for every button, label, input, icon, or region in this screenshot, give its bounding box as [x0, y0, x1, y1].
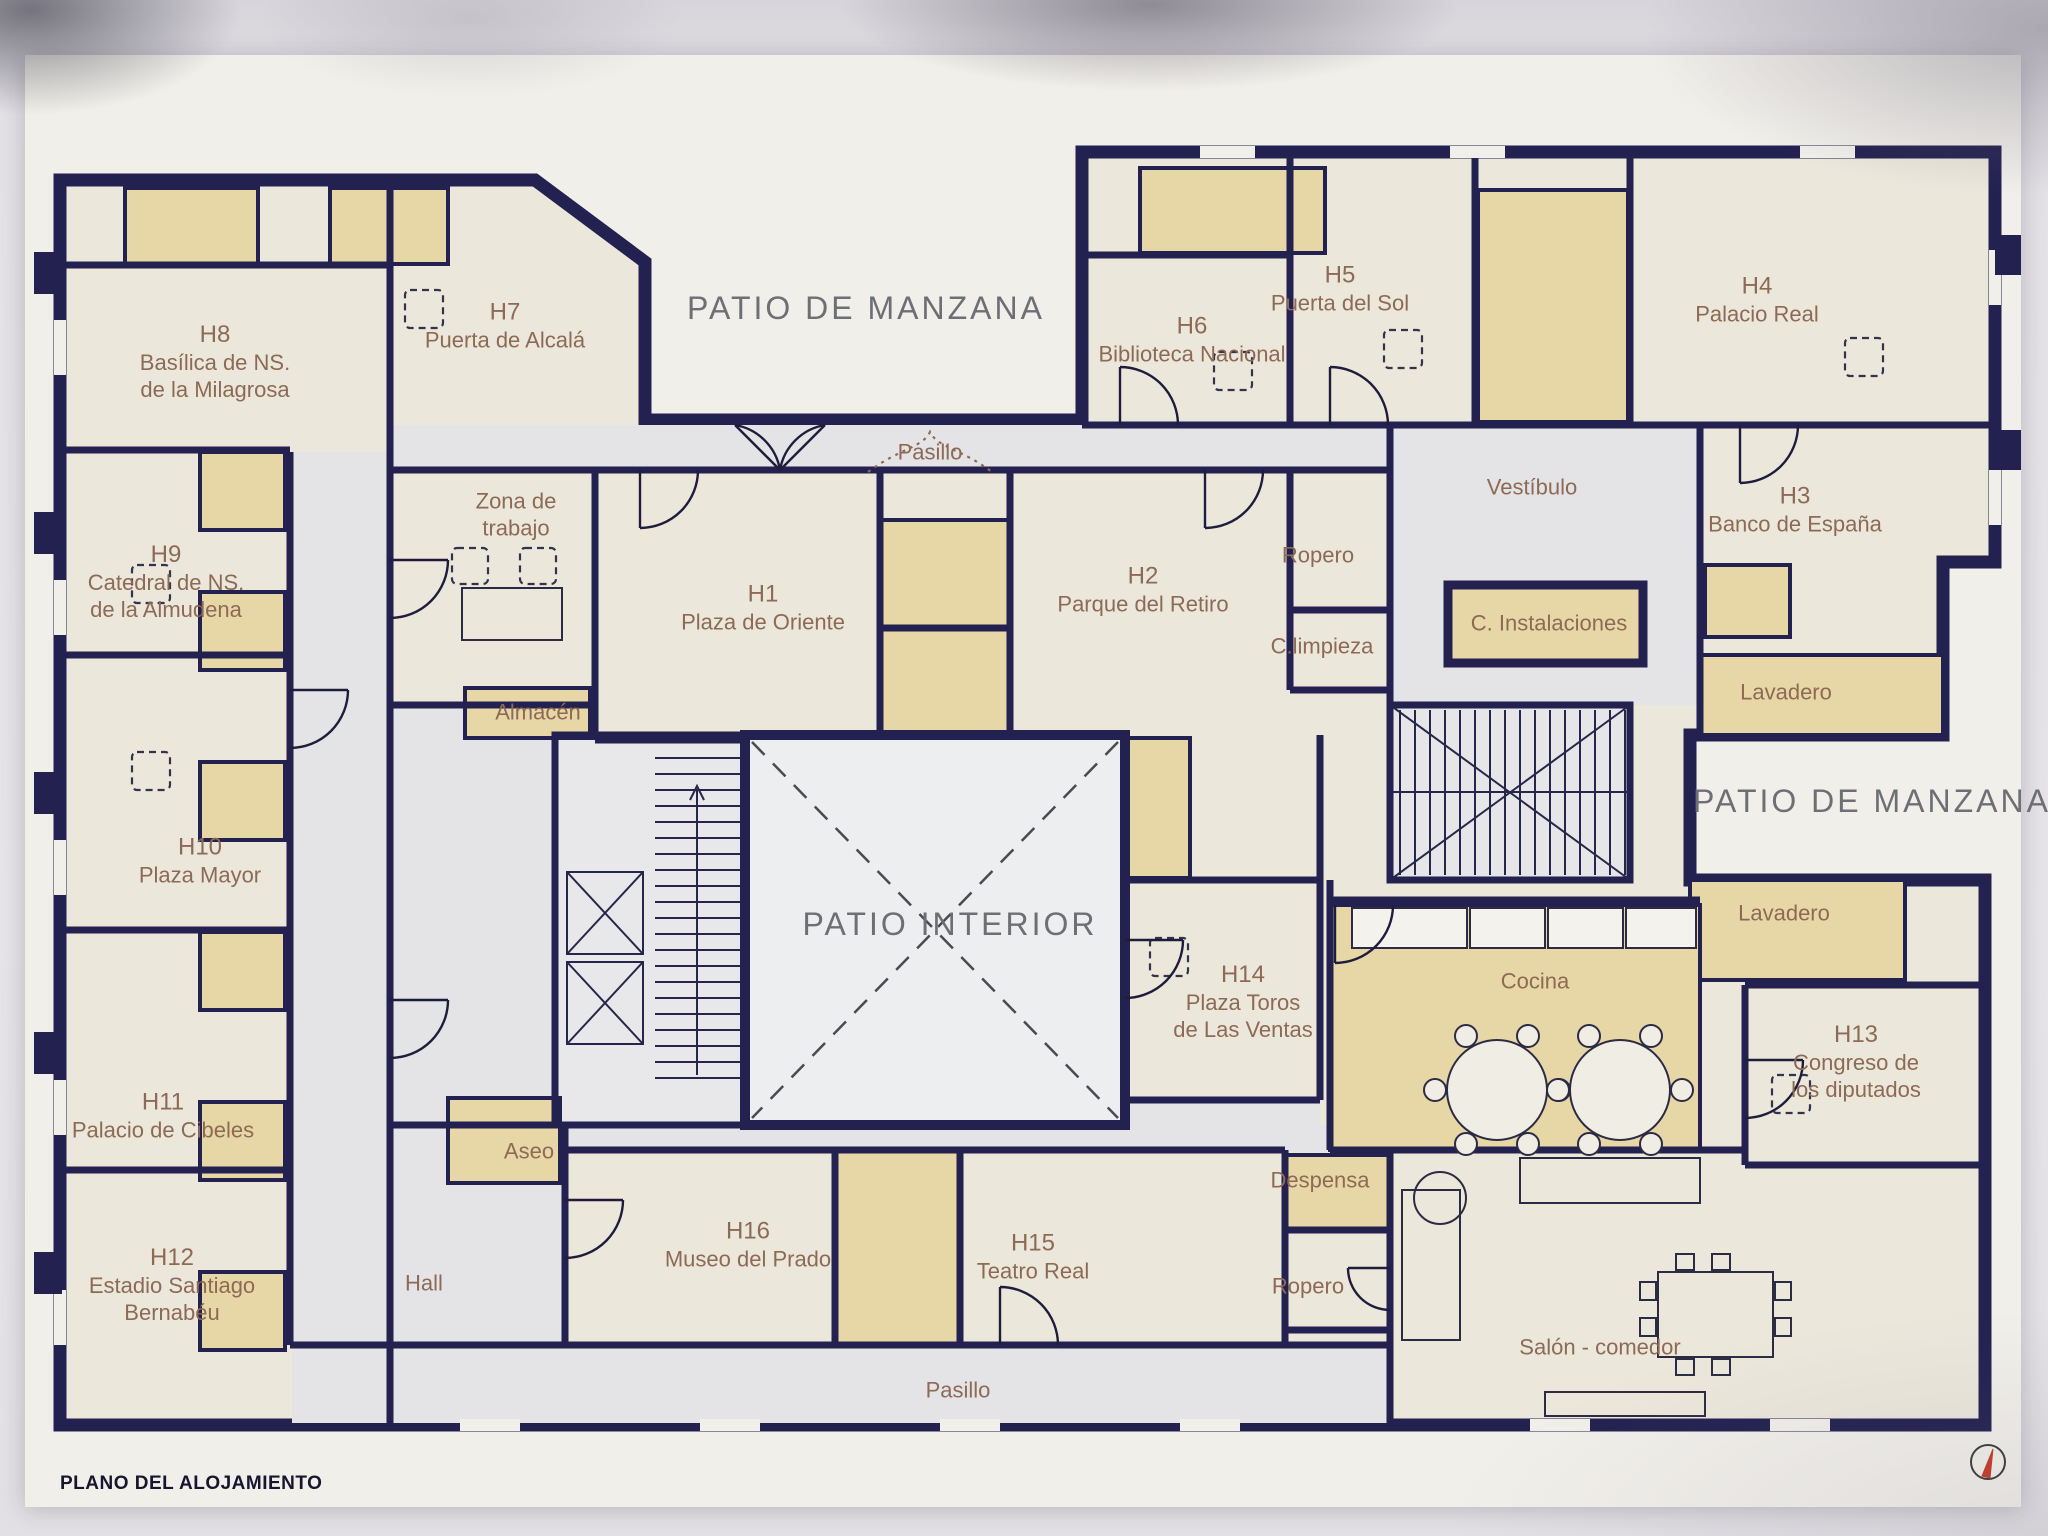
- pasillo-top-label: Pasillo: [898, 441, 963, 466]
- floor-plan-drawing: [0, 0, 2048, 1536]
- lavadero-top-label: Lavadero: [1740, 681, 1832, 706]
- room-label-h12: H12Estadio SantiagoBernabéu: [89, 1245, 255, 1325]
- aseo-label: Aseo: [504, 1140, 554, 1165]
- room-label-h9: H9Catedral de NS.de la Almudena: [88, 542, 245, 622]
- despensa-label: Despensa: [1270, 1169, 1369, 1194]
- c-instalaciones-label: C. Instalaciones: [1471, 612, 1628, 637]
- room-label-h13: H13Congreso delos diputados: [1791, 1022, 1921, 1102]
- plan-title: PLANO DEL ALOJAMIENTO: [60, 1473, 322, 1495]
- pasillo-bottom-label: Pasillo: [926, 1379, 991, 1404]
- room-label-h11: H11Palacio de Cibeles: [72, 1089, 254, 1143]
- photo-of-floor-plan: PATIO DE MANZANA PATIO DE MANZANA PATIO …: [0, 0, 2048, 1536]
- vestibulo-label: Vestíbulo: [1487, 476, 1578, 501]
- salon-comedor-label: Salón - comedor: [1519, 1336, 1680, 1361]
- almacen-label: Almacén: [495, 701, 581, 726]
- hall-label: Hall: [405, 1272, 443, 1297]
- compass-icon: [1971, 1445, 2005, 1479]
- room-label-h14: H14Plaza Torosde Las Ventas: [1173, 962, 1312, 1042]
- room-label-h10: H10Plaza Mayor: [139, 834, 261, 888]
- room-label-h6: H6Biblioteca Nacional: [1098, 313, 1285, 367]
- room-label-h3: H3Banco de España: [1708, 483, 1882, 537]
- c-limpieza-label: C.limpieza: [1271, 635, 1374, 660]
- room-label-h2: H2Parque del Retiro: [1057, 563, 1228, 617]
- lavadero-right-label: Lavadero: [1738, 902, 1830, 927]
- ropero-bottom-label: Ropero: [1272, 1275, 1344, 1300]
- room-label-h15: H15Teatro Real: [977, 1230, 1090, 1284]
- ropero-top-label: Ropero: [1282, 544, 1354, 569]
- patio-interior-label: PATIO INTERIOR: [802, 907, 1097, 943]
- room-label-h16: H16Museo del Prado: [665, 1218, 831, 1272]
- room-label-h4: H4Palacio Real: [1695, 273, 1819, 327]
- cocina-label: Cocina: [1501, 970, 1569, 995]
- room-label-h8: H8Basílica de NS.de la Milagrosa: [140, 322, 290, 402]
- room-label-h5: H5Puerta del Sol: [1271, 262, 1409, 316]
- room-label-h1: H1Plaza de Oriente: [681, 581, 845, 635]
- zona-trabajo-label: Zona detrabajo: [476, 489, 557, 540]
- room-label-h7: H7Puerta de Alcalá: [425, 299, 585, 353]
- patio-manzana-top-label: PATIO DE MANZANA: [687, 291, 1045, 327]
- patio-manzana-right-label: PATIO DE MANZANA: [1693, 784, 2048, 820]
